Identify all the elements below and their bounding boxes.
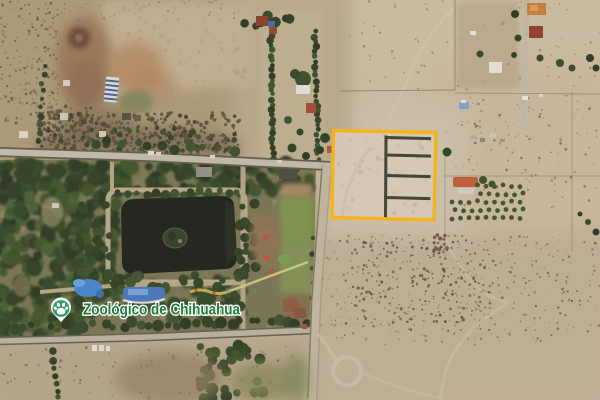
svg-text:Zoológico de Chihuahua: Zoológico de Chihuahua xyxy=(83,302,240,319)
